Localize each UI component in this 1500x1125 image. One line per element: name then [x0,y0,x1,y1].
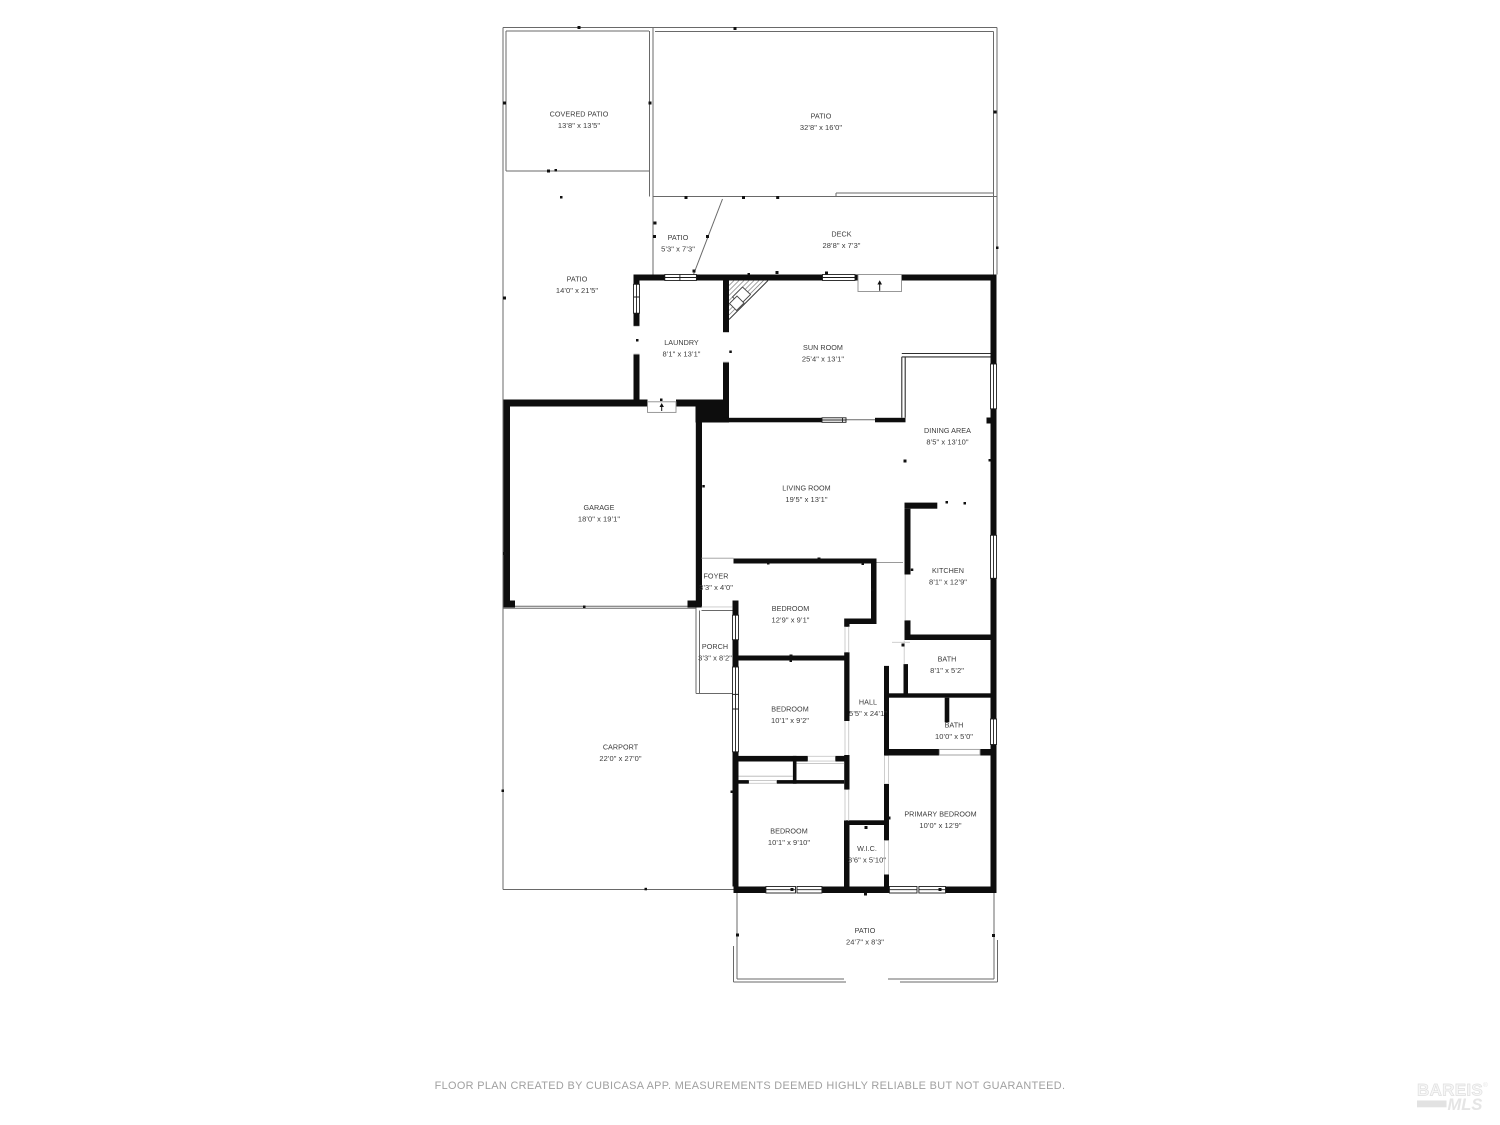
svg-text:HALL: HALL [859,698,877,707]
svg-text:PATIO: PATIO [567,275,588,284]
svg-text:BEDROOM: BEDROOM [770,827,808,836]
svg-text:8’1" x 12’9": 8’1" x 12’9" [929,578,967,587]
svg-text:PATIO: PATIO [855,926,876,935]
svg-text:8’1" x 13’1": 8’1" x 13’1" [662,350,700,359]
svg-text:MLS: MLS [1448,1096,1483,1114]
svg-text:12’9" x 9’1": 12’9" x 9’1" [771,616,809,625]
svg-text:10’0" x 12’9": 10’0" x 12’9" [919,821,962,830]
svg-text:W.I.C.: W.I.C. [857,844,877,853]
svg-text:24’7" x 8’3": 24’7" x 8’3" [846,938,884,947]
svg-text:5’5" x 24’1": 5’5" x 24’1" [849,709,887,718]
svg-text:25’4" x 13’1": 25’4" x 13’1" [802,355,845,364]
svg-text:10’0" x 5’0": 10’0" x 5’0" [935,732,973,741]
svg-text:14’0" x 21’5": 14’0" x 21’5" [556,286,599,295]
svg-text:FLOOR PLAN CREATED BY CUBICASA: FLOOR PLAN CREATED BY CUBICASA APP. MEAS… [435,1080,1066,1092]
svg-text:CARPORT: CARPORT [603,743,639,752]
svg-text:PATIO: PATIO [811,112,832,121]
svg-text:13’8" x 13’5": 13’8" x 13’5" [558,121,601,130]
svg-text:COVERED PATIO: COVERED PATIO [550,110,609,119]
svg-text:8’1" x 5’2": 8’1" x 5’2" [930,666,964,675]
svg-text:DECK: DECK [831,230,851,239]
svg-text:FOYER: FOYER [703,572,728,581]
svg-text:28’8" x 7’3": 28’8" x 7’3" [822,241,860,250]
svg-text:LIVING ROOM: LIVING ROOM [782,484,830,493]
svg-text:BATH: BATH [945,721,964,730]
svg-text:BATH: BATH [938,655,957,664]
svg-text:GARAGE: GARAGE [583,503,614,512]
svg-text:PATIO: PATIO [668,233,689,242]
svg-text:3’3" x 8’2": 3’3" x 8’2" [698,654,732,663]
svg-text:PORCH: PORCH [702,642,728,651]
svg-text:32’8" x 16’0": 32’8" x 16’0" [800,123,843,132]
svg-text:18’0" x 19’1": 18’0" x 19’1" [578,515,621,524]
svg-text:SUN ROOM: SUN ROOM [803,343,843,352]
svg-text:LAUNDRY: LAUNDRY [664,338,699,347]
svg-text:22’0" x 27’0": 22’0" x 27’0" [599,754,642,763]
svg-text:3’6" x 5’10": 3’6" x 5’10" [848,856,886,865]
svg-text:KITCHEN: KITCHEN [932,566,964,575]
svg-text:8’5" x 13’10": 8’5" x 13’10" [926,438,969,447]
svg-text:19’5" x 13’1": 19’5" x 13’1" [785,495,828,504]
svg-text:5’3" x 7’3": 5’3" x 7’3" [661,245,695,254]
svg-text:BEDROOM: BEDROOM [771,705,809,714]
svg-text:3’3" x 4’0": 3’3" x 4’0" [699,583,733,592]
svg-text:10’1" x 9’10": 10’1" x 9’10" [768,838,811,847]
svg-text:DINING AREA: DINING AREA [924,426,971,435]
svg-text:®: ® [1483,1081,1488,1089]
svg-text:10’1" x 9’2": 10’1" x 9’2" [771,716,809,725]
svg-text:BEDROOM: BEDROOM [772,604,810,613]
svg-text:PRIMARY BEDROOM: PRIMARY BEDROOM [904,810,976,819]
